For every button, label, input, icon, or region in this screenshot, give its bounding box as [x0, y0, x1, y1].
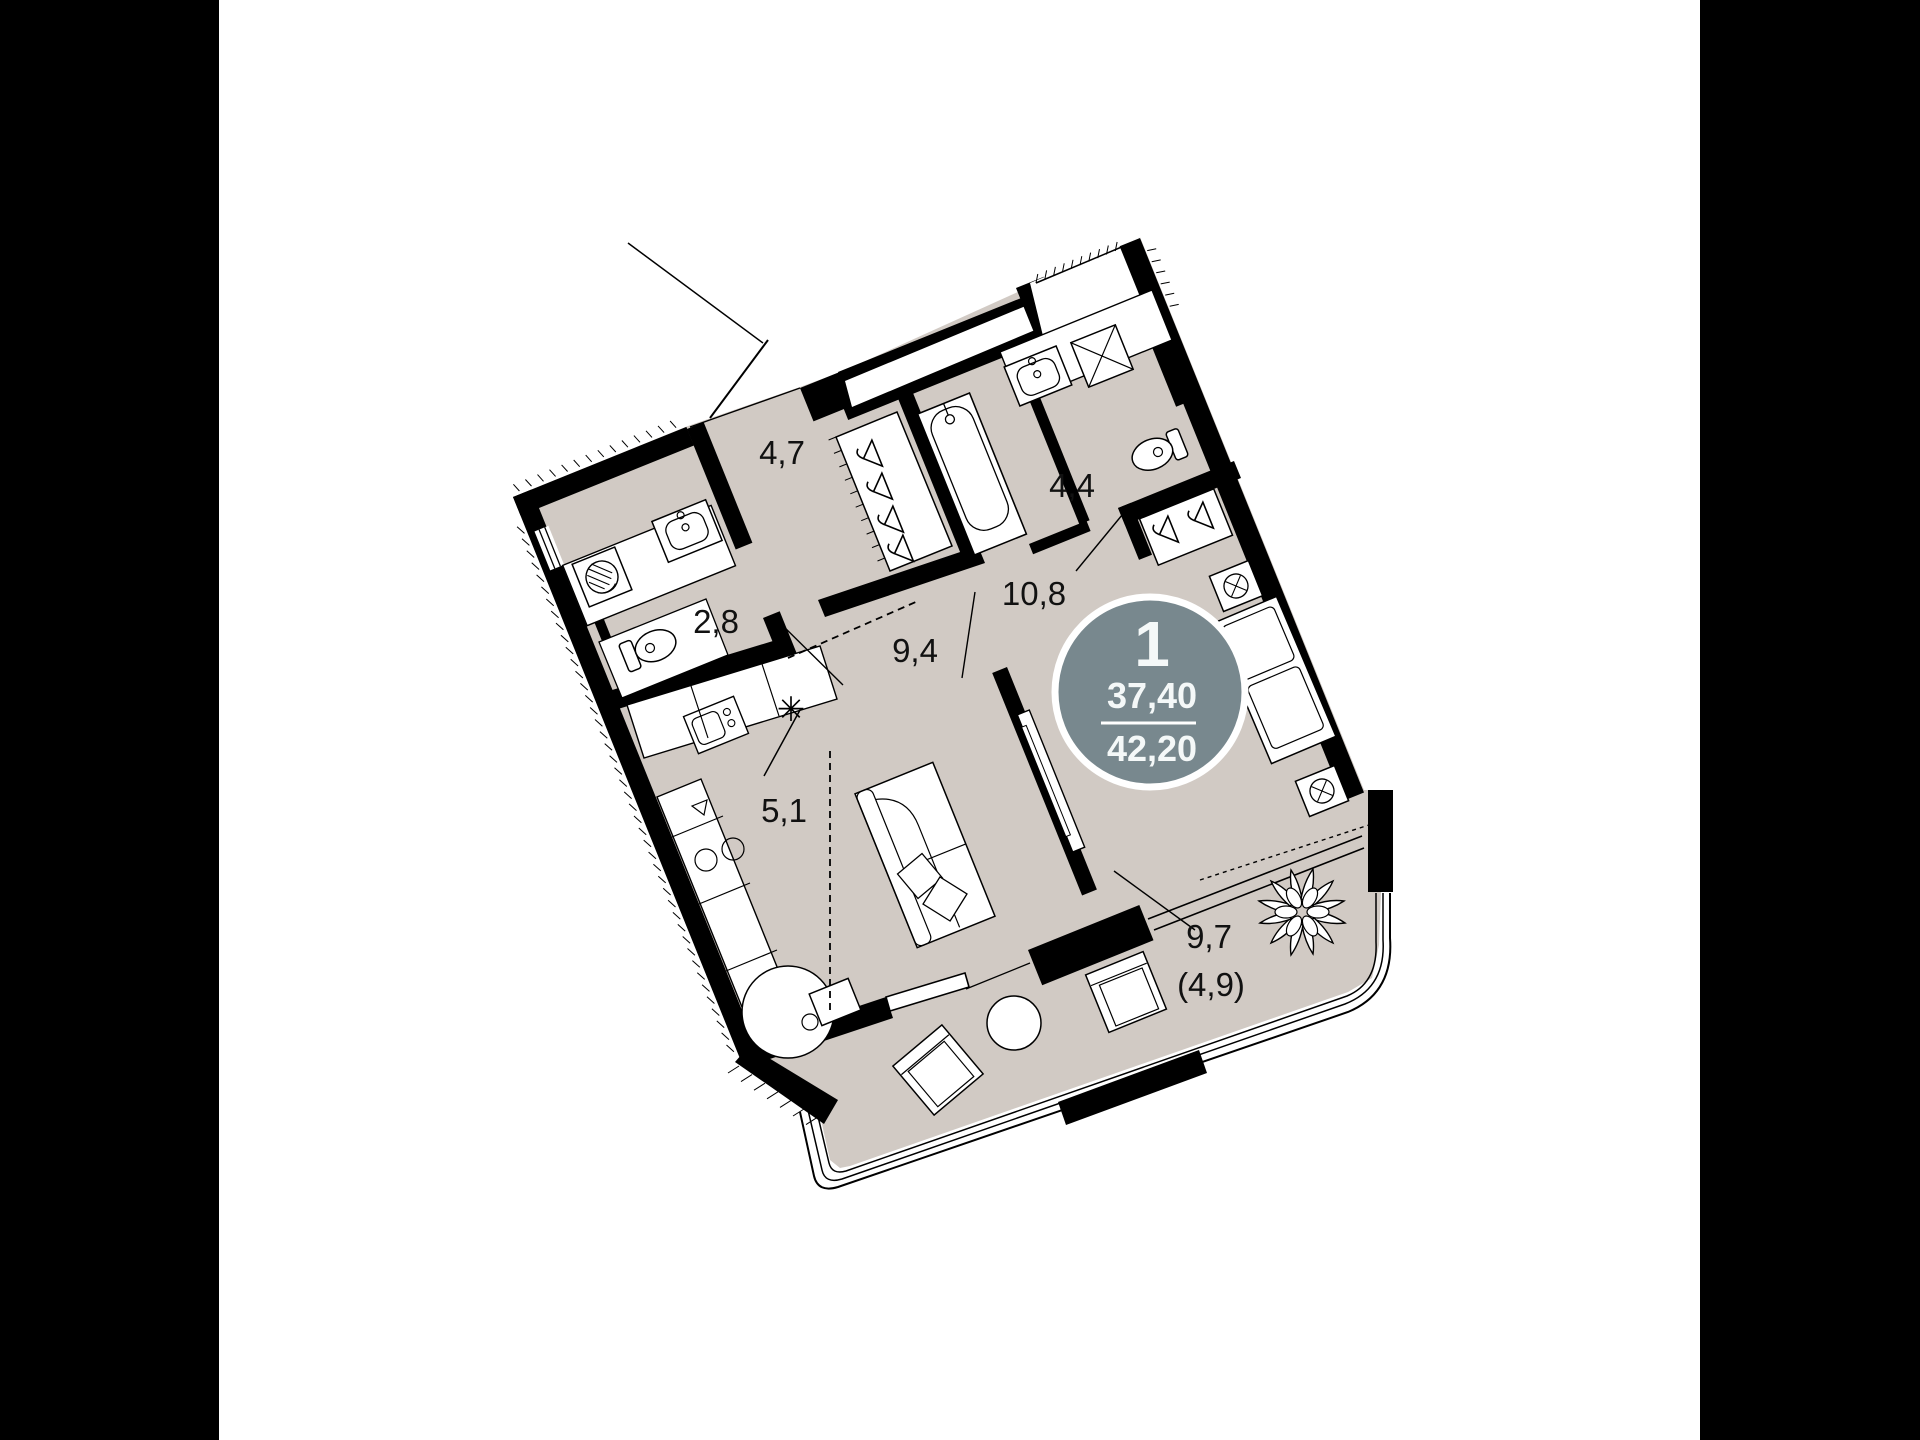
svg-text:10,8: 10,8: [1002, 575, 1066, 612]
svg-text:4,7: 4,7: [759, 434, 805, 471]
svg-text:9,4: 9,4: [892, 632, 938, 669]
svg-text:37,40: 37,40: [1107, 675, 1197, 716]
svg-text:5,1: 5,1: [761, 792, 807, 829]
svg-text:42,20: 42,20: [1107, 728, 1197, 769]
svg-text:✳: ✳: [777, 691, 806, 729]
svg-text:9,7: 9,7: [1186, 918, 1232, 955]
svg-text:4,4: 4,4: [1049, 467, 1095, 504]
svg-text:1: 1: [1134, 608, 1170, 680]
svg-text:2,8: 2,8: [693, 603, 739, 640]
svg-text:(4,9): (4,9): [1177, 966, 1245, 1003]
